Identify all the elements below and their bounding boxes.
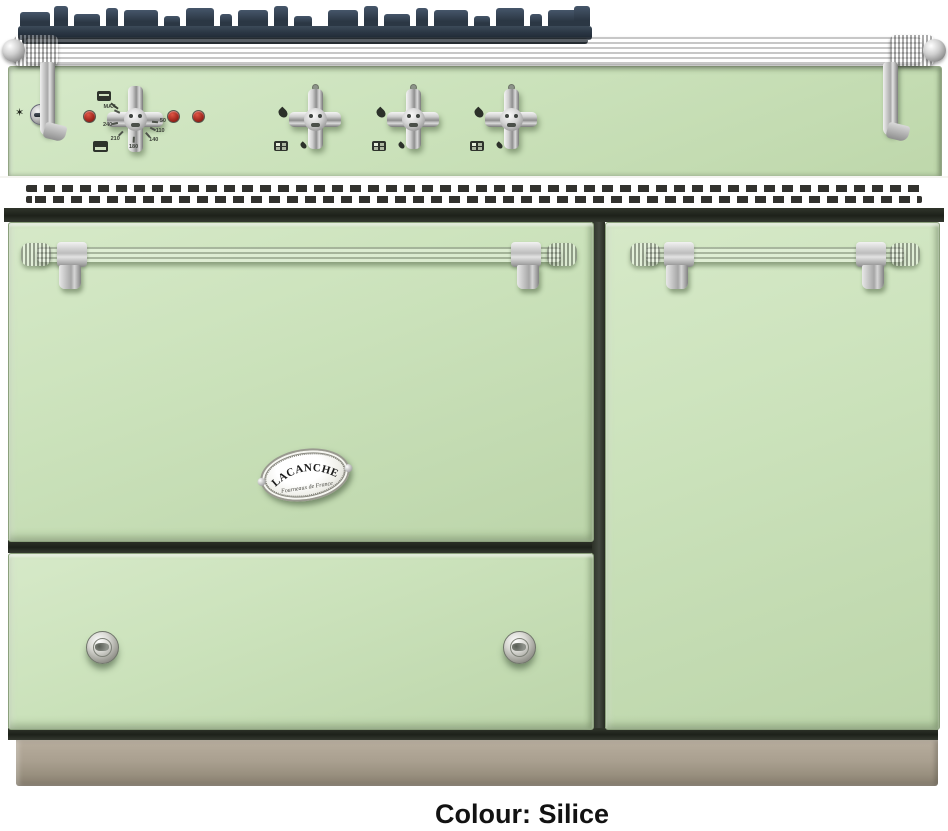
pan-support-finger bbox=[164, 16, 180, 26]
handle-cap-left bbox=[630, 243, 660, 266]
thermostat-scale-label: 180 bbox=[129, 144, 138, 150]
thermostat-scale-label: 110 bbox=[156, 128, 165, 134]
pan-support-finger bbox=[220, 14, 232, 26]
pan-support-finger bbox=[434, 10, 468, 26]
pan-support-finger bbox=[474, 16, 490, 26]
handle-bracket-right bbox=[856, 242, 886, 267]
pan-support-finger bbox=[574, 6, 590, 26]
colour-caption: Colour: Silice bbox=[0, 799, 948, 830]
knob-center bbox=[304, 108, 327, 131]
pan-support-finger bbox=[74, 14, 100, 26]
separator-band bbox=[4, 208, 944, 222]
pan-support-finger bbox=[364, 6, 378, 26]
oven-door-handle bbox=[21, 237, 577, 297]
burner-knob bbox=[289, 89, 341, 149]
flame-icon bbox=[473, 107, 486, 120]
control-panel: ✶ MAX24021018014011050 bbox=[8, 66, 942, 178]
oven-door: LACANCHE Fourneaux de France bbox=[8, 222, 594, 542]
handle-bracket-left bbox=[57, 242, 87, 267]
drawer-knob-right bbox=[503, 631, 536, 664]
flame-icon bbox=[277, 107, 290, 120]
handle-bracket-left bbox=[664, 242, 694, 267]
warming-cupboard-door bbox=[605, 222, 940, 730]
product-page: ✶ MAX24021018014011050 bbox=[0, 0, 948, 831]
flame-icon bbox=[375, 107, 388, 120]
towel-rail-tube bbox=[26, 37, 922, 64]
handle-tube bbox=[37, 247, 561, 262]
towel-rail bbox=[2, 34, 946, 70]
handle-foot-left bbox=[59, 265, 81, 289]
rail-bracket-right bbox=[883, 62, 898, 136]
pan-support-finger bbox=[124, 10, 158, 26]
rail-bracket-left bbox=[40, 62, 55, 136]
oven-icon bbox=[93, 141, 108, 152]
thermostat-scale-label: 140 bbox=[149, 137, 158, 143]
thermostat-scale-label: 210 bbox=[111, 136, 120, 142]
pan-support-finger bbox=[384, 14, 410, 26]
plinth bbox=[16, 740, 938, 786]
handle-bracket-right bbox=[511, 242, 541, 267]
burner-knob bbox=[387, 89, 439, 149]
product-photo[interactable]: ✶ MAX24021018014011050 bbox=[0, 0, 948, 831]
vent-slot-row bbox=[26, 185, 922, 192]
vent-grille bbox=[0, 176, 948, 210]
oven-indicator-light bbox=[83, 110, 96, 123]
pan-support-finger bbox=[496, 8, 524, 26]
pan-support-finger bbox=[20, 12, 50, 26]
thermostat-scale-tick bbox=[152, 120, 158, 122]
thermostat-scale-label: 50 bbox=[160, 118, 166, 124]
pan-support-finger bbox=[294, 16, 312, 26]
pan-support-finger bbox=[328, 10, 358, 26]
mains-indicator-light bbox=[192, 110, 205, 123]
rail-finial-left bbox=[2, 39, 25, 62]
pan-support-finger bbox=[274, 6, 288, 26]
burner-zone-icon bbox=[470, 141, 484, 151]
handle-cap-left bbox=[21, 243, 51, 266]
pan-support-finger bbox=[530, 14, 542, 26]
cupboard-door-handle bbox=[630, 237, 920, 297]
knob-center bbox=[124, 108, 147, 131]
vent-slot-row bbox=[26, 196, 922, 203]
burner-zone-icon bbox=[274, 141, 288, 151]
knob-center bbox=[500, 108, 523, 131]
knob-center bbox=[402, 108, 425, 131]
burner-zone-icon bbox=[372, 141, 386, 151]
lacanche-badge: LACANCHE Fourneaux de France bbox=[256, 442, 353, 507]
pan-support-finger bbox=[106, 8, 118, 26]
handle-cap-right bbox=[890, 243, 920, 266]
handle-foot-right bbox=[862, 265, 884, 289]
burner-knob bbox=[485, 89, 537, 149]
badge-nub-right bbox=[344, 464, 353, 473]
pan-support-finger bbox=[416, 8, 428, 26]
thermostat-scale-tick bbox=[133, 137, 135, 143]
pan-support-finger bbox=[238, 10, 268, 26]
handle-foot-right bbox=[517, 265, 539, 289]
handle-cap-right bbox=[547, 243, 577, 266]
drawer-knob-left bbox=[86, 631, 119, 664]
storage-drawer bbox=[8, 553, 594, 730]
pan-support-finger bbox=[54, 6, 68, 26]
handle-foot-left bbox=[666, 265, 688, 289]
ignition-star-icon: ✶ bbox=[15, 108, 24, 119]
rail-finial-right bbox=[923, 39, 946, 62]
thermostat-indicator-light bbox=[167, 110, 180, 123]
pan-support-finger bbox=[186, 8, 214, 26]
